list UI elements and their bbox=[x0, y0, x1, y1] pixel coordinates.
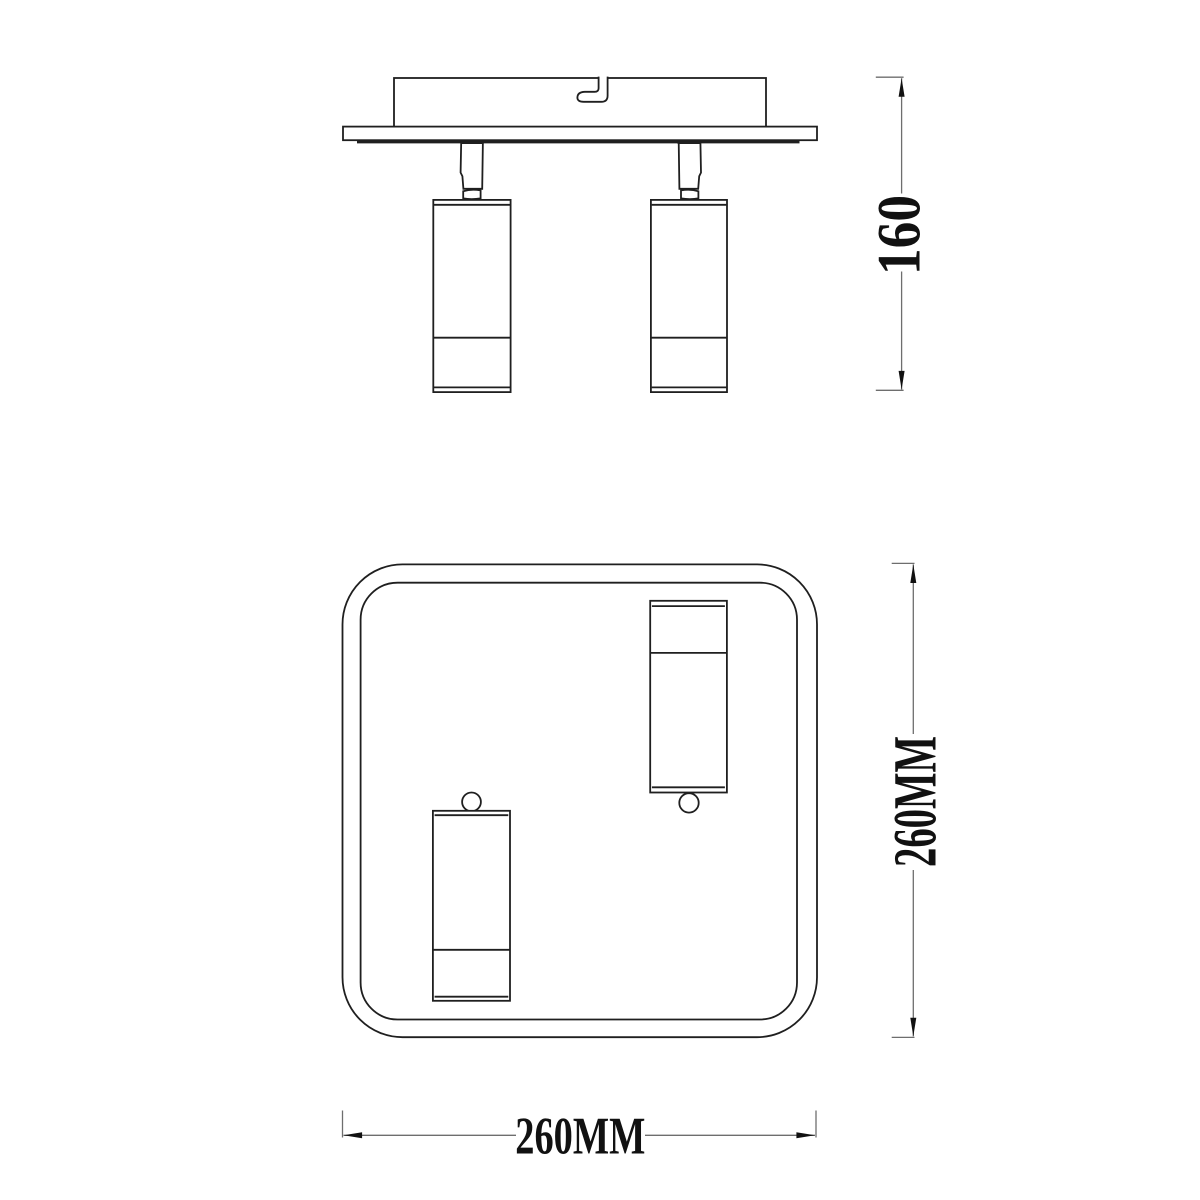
svg-text:260MM: 260MM bbox=[515, 1107, 645, 1165]
svg-text:260MM: 260MM bbox=[883, 736, 950, 867]
svg-text:160: 160 bbox=[867, 195, 934, 275]
